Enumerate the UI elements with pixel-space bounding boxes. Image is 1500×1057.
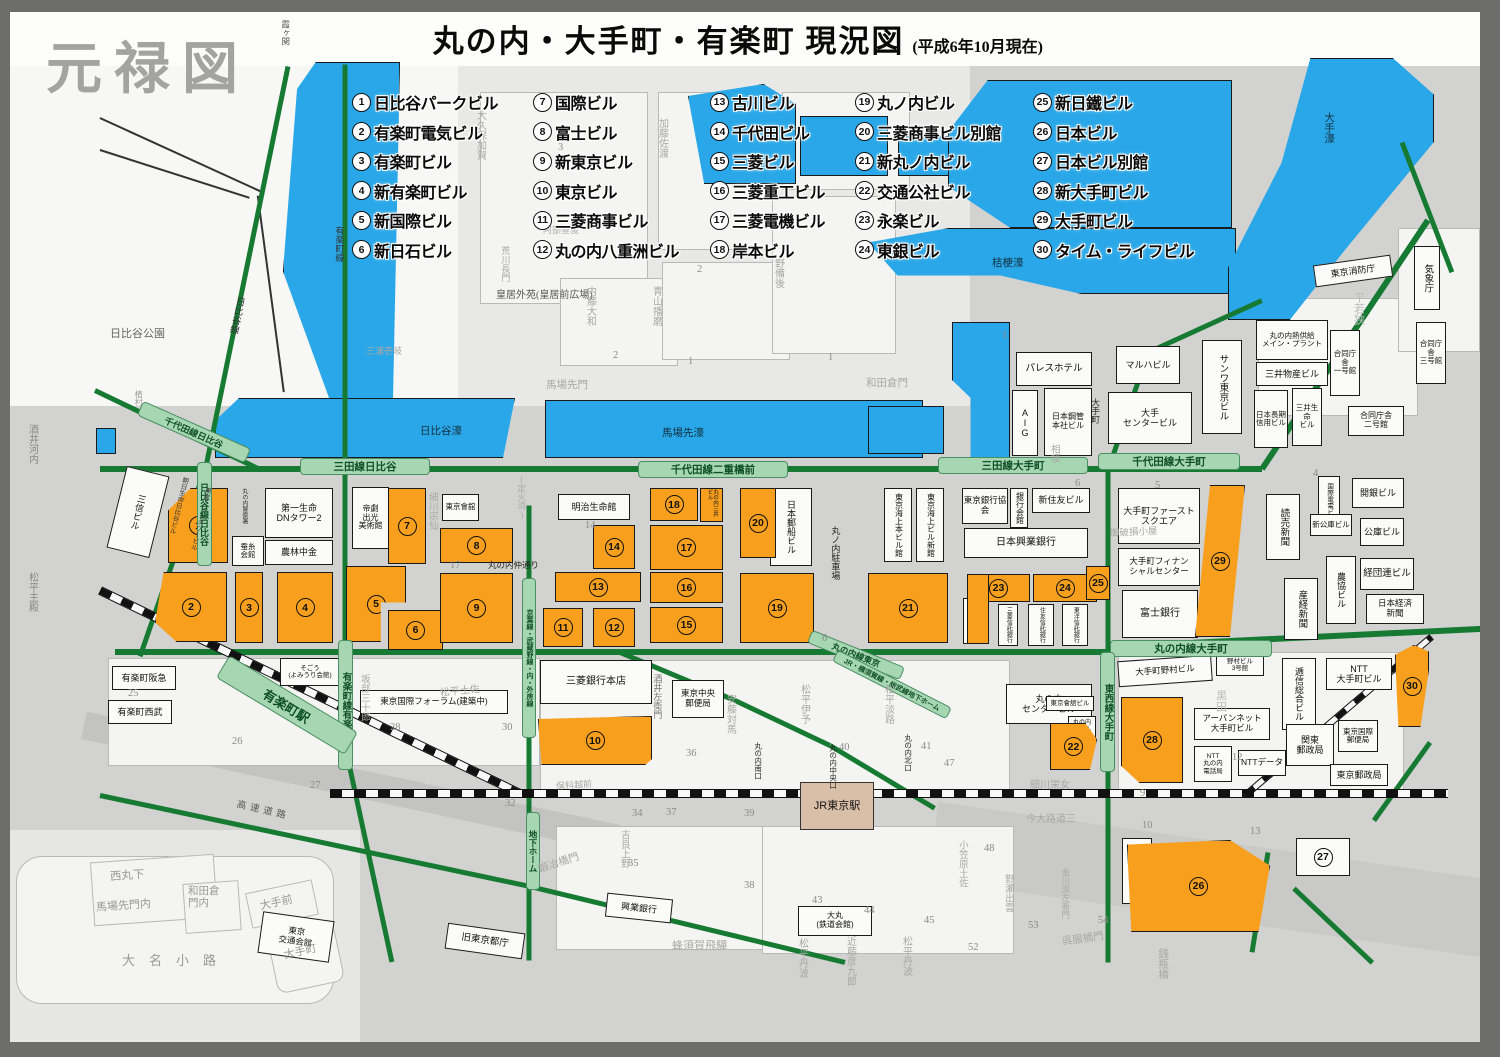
building-white: NTT 丸の内 電話局 bbox=[1194, 746, 1232, 782]
legend-building-name: 丸ノ内ビル bbox=[877, 90, 955, 114]
building-orange-14: 14 bbox=[593, 525, 635, 569]
city-block bbox=[662, 262, 790, 360]
map-label: 和田倉 門内 bbox=[188, 886, 220, 910]
map-label: 松平伊予 bbox=[798, 684, 810, 724]
map-label: 銭瓶橋 bbox=[1156, 948, 1168, 980]
building-white: 大手町フィナン シャルセンター bbox=[1118, 548, 1200, 586]
map-label: 皇居外苑(皇居前広場) bbox=[496, 290, 593, 302]
circled-number: 11 bbox=[554, 618, 573, 637]
legend-building-name: 有楽町電気ビル bbox=[374, 120, 483, 144]
building-white: 帝劇 出光 美術館 bbox=[352, 487, 389, 549]
map-label: 丸の内南口 bbox=[753, 742, 762, 780]
building-white: 日本長期 信用ビル bbox=[1254, 390, 1288, 448]
building-white: 有楽町西武 bbox=[108, 700, 172, 724]
plot-number: 13 bbox=[1250, 826, 1261, 837]
legend-item-4: 4新有楽町ビル bbox=[352, 181, 467, 201]
legend-building-name: 新日石ビル bbox=[374, 238, 452, 262]
circled-number: 16 bbox=[677, 578, 696, 597]
legend-building-name: 新大手町ビル bbox=[1055, 179, 1148, 203]
legend-item-8: 8富士ビル bbox=[533, 122, 617, 142]
legend-number: 15 bbox=[710, 152, 729, 171]
legend-building-name: 永楽ビル bbox=[877, 208, 939, 232]
legend-number: 17 bbox=[710, 211, 729, 230]
plot-number: 5 bbox=[1155, 480, 1160, 491]
map-label: 馬場先濠 bbox=[662, 428, 704, 440]
map-label: 野瀬出雲 bbox=[1002, 874, 1013, 912]
circled-number: 10 bbox=[586, 731, 605, 750]
circled-number: 9 bbox=[467, 599, 486, 618]
building-orange-20: 20 bbox=[740, 488, 776, 558]
map-label: 大手町 bbox=[1090, 398, 1100, 424]
building-white: 蚕糸 会館 bbox=[232, 536, 264, 566]
legend-number: 12 bbox=[533, 240, 552, 259]
plot-number: 2 bbox=[613, 350, 618, 361]
building-orange-27: 27 bbox=[1296, 838, 1350, 876]
legend-item-21: 21新丸ノ内ビル bbox=[855, 151, 970, 171]
plot-number: 9 bbox=[1140, 788, 1145, 799]
map-label: 大手濠 bbox=[1322, 112, 1334, 144]
legend-item-29: 29大手町ビル bbox=[1033, 210, 1133, 230]
building-white: 気象庁 bbox=[1414, 246, 1440, 310]
building-orange-28: 28 bbox=[1121, 697, 1183, 783]
plot-number: 43 bbox=[812, 895, 823, 906]
plot-number: 37 bbox=[666, 807, 677, 818]
building-white: NTT 大手町ビル bbox=[1326, 658, 1392, 690]
plot-number: 10 bbox=[1142, 820, 1153, 831]
plot-number: 52 bbox=[968, 942, 979, 953]
plot-number: 4 bbox=[1313, 468, 1318, 479]
building-orange-15: 15 bbox=[650, 607, 723, 643]
legend-item-25: 25新日鐵ビル bbox=[1033, 92, 1133, 112]
map-label: 和田倉門 bbox=[866, 378, 908, 390]
map-label: 松平主殿 bbox=[26, 572, 38, 612]
building-orange-11: 11 bbox=[543, 608, 583, 647]
building-orange-7: 7 bbox=[388, 488, 426, 564]
building-orange-25: 25 bbox=[1086, 566, 1110, 600]
circled-number: 8 bbox=[467, 536, 486, 555]
legend-building-name: 新国際ビル bbox=[374, 208, 452, 232]
plot-number: 1 bbox=[828, 352, 833, 363]
circled-number: 12 bbox=[605, 618, 624, 637]
building-orange-18: 18 bbox=[650, 488, 698, 521]
building-orange-21: 21 bbox=[868, 573, 948, 643]
road-green-line bbox=[115, 649, 1106, 655]
building-orange: 丸の内三井ビル bbox=[700, 488, 723, 522]
map-label: 丸の内北口 bbox=[903, 734, 912, 772]
plot-number: 27 bbox=[310, 780, 321, 791]
legend-number: 30 bbox=[1033, 240, 1052, 259]
building-orange-26: 26 bbox=[1127, 840, 1270, 932]
plot-number: 17 bbox=[450, 560, 461, 571]
circled-number: 30 bbox=[1403, 677, 1422, 696]
map-label: 黒田 bbox=[1214, 690, 1227, 712]
building-white: JR東京駅 bbox=[800, 782, 874, 830]
legend-item-16: 16三菱重工ビル bbox=[710, 181, 825, 201]
building-white: アーバンネット 大手町ビル bbox=[1194, 708, 1270, 740]
circled-number: 25 bbox=[1089, 574, 1108, 593]
legend-number: 27 bbox=[1033, 152, 1052, 171]
legend-building-name: 古川ビル bbox=[732, 90, 794, 114]
circled-number: 22 bbox=[1064, 737, 1083, 756]
legend-number: 13 bbox=[710, 93, 729, 112]
legend-number: 9 bbox=[533, 152, 552, 171]
building-label: 丸の内三井ビル bbox=[706, 489, 717, 521]
legend-item-1: 1日比谷パークビル bbox=[352, 92, 498, 112]
building-white: 住友信託銀行 bbox=[1028, 604, 1054, 646]
circled-number: 27 bbox=[1314, 848, 1333, 867]
page-edge-bottom bbox=[0, 1042, 1500, 1057]
building-orange-4: 4 bbox=[277, 572, 333, 643]
map-label: 桔梗濠 bbox=[992, 258, 1024, 270]
legend-item-6: 6新日石ビル bbox=[352, 240, 452, 260]
legend-number: 22 bbox=[855, 181, 874, 200]
legend-number: 18 bbox=[710, 240, 729, 259]
building-white: 丸の内熱供給 メイン・プラント bbox=[1256, 320, 1328, 360]
building-white: 新公庫ビル bbox=[1310, 514, 1352, 536]
legend-building-name: 三菱電機ビル bbox=[732, 208, 825, 232]
legend-building-name: 富士ビル bbox=[555, 120, 617, 144]
page-edge-left bbox=[0, 0, 10, 1057]
legend-building-name: 三菱重工ビル bbox=[732, 179, 825, 203]
building-white: 三菱信託銀行 bbox=[998, 604, 1018, 646]
legend-number: 16 bbox=[710, 181, 729, 200]
legend-number: 23 bbox=[855, 211, 874, 230]
map-label: (定火消) bbox=[516, 474, 526, 520]
plot-number: 39 bbox=[744, 808, 755, 819]
building-white: 三井物産ビル bbox=[1256, 362, 1328, 386]
building-white: 三信ビル bbox=[106, 466, 169, 558]
city-block bbox=[556, 826, 766, 950]
moat-water bbox=[868, 406, 944, 454]
building-orange-12: 12 bbox=[593, 608, 635, 647]
map-label: 丸の内警察署 bbox=[240, 488, 247, 524]
legend-building-name: 新丸ノ内ビル bbox=[877, 149, 970, 173]
building-white: AIG bbox=[1012, 390, 1038, 456]
legend-item-9: 9新東京ビル bbox=[533, 151, 633, 171]
moat-water bbox=[96, 428, 116, 454]
plot-number: 34 bbox=[632, 808, 643, 819]
building-white: 東京海上ビル新館 bbox=[916, 488, 944, 562]
building-white: マルハビル bbox=[1116, 346, 1180, 384]
map-label: 霞ヶ関 bbox=[280, 20, 290, 46]
circled-number: 26 bbox=[1189, 877, 1208, 896]
building-white: 東京国際 郵便局 bbox=[1338, 720, 1378, 752]
legend-number: 6 bbox=[352, 240, 371, 259]
legend-item-3: 3有楽町ビル bbox=[352, 151, 452, 171]
building-white: パレスホテル bbox=[1016, 352, 1092, 386]
building-orange-19: 19 bbox=[740, 573, 814, 643]
legend-item-28: 28新大手町ビル bbox=[1033, 181, 1148, 201]
building-white: 関東 郵政局 bbox=[1286, 724, 1334, 766]
building-white: 三菱銀行本店 bbox=[540, 660, 652, 704]
circled-number: 6 bbox=[406, 621, 425, 640]
building-white: 日本経済 新聞 bbox=[1366, 594, 1424, 624]
map-label: 相模 bbox=[1048, 444, 1059, 463]
map-label: 丸の内中央口 bbox=[828, 744, 837, 789]
plot-number: 1 bbox=[1002, 330, 1007, 341]
plot-number: 14 bbox=[585, 520, 596, 531]
map-label: 松平丹波 bbox=[796, 938, 808, 978]
plot-number: 2 bbox=[697, 264, 702, 275]
legend-number: 26 bbox=[1033, 122, 1052, 141]
legend-item-7: 7国際ビル bbox=[533, 92, 617, 112]
plot-number: 48 bbox=[984, 843, 995, 854]
legend-item-18: 18岸本ビル bbox=[710, 240, 794, 260]
legend-building-name: 三菱商事ビル bbox=[555, 208, 648, 232]
building-white: 東京會舘 bbox=[442, 494, 479, 521]
circled-number: 28 bbox=[1143, 731, 1162, 750]
building-white: 有楽町阪急 bbox=[112, 666, 176, 690]
legend-item-20: 20三菱商事ビル別館 bbox=[855, 122, 1001, 142]
map-label: 高速道路 bbox=[235, 800, 290, 823]
jr-railway-track bbox=[330, 789, 1448, 798]
building-white: サンワ東京ビル bbox=[1202, 340, 1242, 434]
map-label: 小笠原土佐 bbox=[956, 840, 967, 888]
legend-number: 21 bbox=[855, 152, 874, 171]
building-white: 産経新聞 bbox=[1284, 578, 1318, 640]
building-white: 東洋信託銀行 bbox=[1062, 604, 1088, 646]
plot-number: 47 bbox=[944, 758, 955, 769]
legend-number: 3 bbox=[352, 152, 371, 171]
legend-building-name: 三菱ビル bbox=[732, 149, 794, 173]
legend-item-11: 11三菱商事ビル bbox=[533, 210, 648, 230]
building-white: 銀行会館 bbox=[1010, 488, 1028, 528]
legend-number: 29 bbox=[1033, 211, 1052, 230]
map-label: 加藤佐渡 bbox=[656, 118, 668, 158]
building-orange-8: 8 bbox=[440, 528, 513, 563]
map-label: 松平丹波 bbox=[900, 936, 912, 976]
building-orange-13: 13 bbox=[555, 572, 641, 602]
legend-number: 20 bbox=[855, 122, 874, 141]
building-white: 東京會舘ビル bbox=[1046, 696, 1094, 711]
legend-building-name: 国際ビル bbox=[555, 90, 617, 114]
legend-number: 24 bbox=[855, 240, 874, 259]
map-label: 細川栄女 bbox=[1030, 780, 1070, 792]
map-label: 今大路道三 bbox=[1026, 814, 1076, 826]
circled-number: 18 bbox=[665, 495, 684, 514]
map-label: 蜂須賀飛驒 bbox=[672, 940, 727, 953]
building-orange-10: 10 bbox=[538, 716, 652, 765]
legend-item-10: 10東京ビル bbox=[533, 181, 617, 201]
circled-number: 29 bbox=[1211, 552, 1230, 571]
legend-item-12: 12丸の内八重洲ビル bbox=[533, 240, 679, 260]
circled-number: 21 bbox=[899, 599, 918, 618]
map-label: 西丸下 bbox=[110, 869, 145, 885]
station-pill: 丸の内線大手町 bbox=[1110, 640, 1272, 657]
legend-item-14: 14千代田ビル bbox=[710, 122, 810, 142]
station-pill: 地下ホーム bbox=[526, 812, 540, 890]
legend-number: 14 bbox=[710, 122, 729, 141]
map-label: 細川宗仙 bbox=[426, 492, 437, 530]
circled-number: 7 bbox=[398, 517, 417, 536]
legend-number: 8 bbox=[533, 122, 552, 141]
page-edge-right bbox=[1480, 0, 1500, 1057]
legend-item-17: 17三菱電機ビル bbox=[710, 210, 825, 230]
moat-water bbox=[545, 400, 923, 458]
legend-building-name: 東京ビル bbox=[555, 179, 617, 203]
map-label: 三浦壱岐 bbox=[366, 346, 402, 356]
legend-building-name: 新有楽町ビル bbox=[374, 179, 467, 203]
plot-number: 35 bbox=[628, 858, 639, 869]
legend-number: 5 bbox=[352, 211, 371, 230]
legend-item-5: 5新国際ビル bbox=[352, 210, 452, 230]
title-date-note: (平成6年10月現在) bbox=[912, 33, 1043, 57]
building-white: 農林中金 bbox=[265, 540, 333, 565]
legend-number: 1 bbox=[352, 93, 371, 112]
building-white: 大丸 (鉄道会館) bbox=[798, 906, 872, 936]
map-label: 有楽町線 bbox=[334, 226, 344, 262]
building-white: 大手 センタービル bbox=[1108, 392, 1192, 444]
page-title: 丸の内・大手町・有楽町 現況図 (平成6年10月現在) bbox=[433, 16, 1043, 61]
map-label: 松平淡路 bbox=[882, 684, 894, 724]
page-edge-top bbox=[0, 0, 1500, 12]
building-white: 読売新聞 bbox=[1266, 494, 1300, 560]
circled-number: 23 bbox=[989, 579, 1008, 598]
circled-number: 20 bbox=[749, 514, 768, 533]
circled-number: 14 bbox=[605, 538, 624, 557]
circled-number: 3 bbox=[240, 598, 259, 617]
building-orange-9: 9 bbox=[440, 573, 513, 643]
building-white: 経団連ビル bbox=[1360, 558, 1414, 590]
circled-number: 5 bbox=[367, 595, 386, 614]
building-white: 旧東京都庁 bbox=[445, 923, 526, 960]
title-text: 丸の内・大手町・有楽町 現況図 bbox=[433, 16, 905, 61]
legend-number: 2 bbox=[352, 122, 371, 141]
building-white: NTTデータ bbox=[1238, 750, 1286, 776]
legend-number: 19 bbox=[855, 93, 874, 112]
plot-number: 38 bbox=[744, 880, 755, 891]
plot-number: 41 bbox=[921, 741, 932, 752]
legend-building-name: 丸の内八重洲ビル bbox=[555, 238, 679, 262]
legend-building-name: 岸本ビル bbox=[732, 238, 794, 262]
plot-number: 32 bbox=[505, 798, 516, 809]
map-label: 呉服橋門 bbox=[1061, 931, 1104, 949]
plot-number: 12 bbox=[1232, 752, 1243, 763]
legend-number: 11 bbox=[533, 211, 552, 230]
legend-item-27: 27日本ビル別館 bbox=[1033, 151, 1148, 171]
legend-item-13: 13古川ビル bbox=[710, 92, 794, 112]
map-label: 丸ノ内駐車場 bbox=[830, 526, 840, 580]
legend-building-name: 日比谷パークビル bbox=[374, 90, 498, 114]
building-white: 東京海上本ビル館 bbox=[884, 488, 912, 562]
building-white: 第一生命 DNタワー2 bbox=[265, 488, 333, 538]
legend-building-name: タイム・ライフビル bbox=[1055, 238, 1194, 262]
map-label: 丸の内仲通り bbox=[488, 561, 539, 571]
plot-number: 28 bbox=[390, 722, 401, 733]
legend-building-name: 千代田ビル bbox=[732, 120, 810, 144]
legend-building-name: 新日鐵ビル bbox=[1055, 90, 1133, 114]
legend-building-name: 大手町ビル bbox=[1055, 208, 1133, 232]
map-label: 野備後 bbox=[772, 258, 784, 288]
plot-number: 54 bbox=[1098, 915, 1109, 926]
legend-number: 4 bbox=[352, 181, 371, 200]
building-white: 開銀ビル bbox=[1352, 478, 1404, 508]
legend-building-name: 有楽町ビル bbox=[374, 149, 452, 173]
legend-item-30: 30タイム・ライフビル bbox=[1033, 240, 1194, 260]
legend-number: 25 bbox=[1033, 93, 1052, 112]
building-white: 富士銀行 bbox=[1122, 590, 1198, 638]
plot-number: 6 bbox=[1075, 478, 1080, 489]
map-label: 馬場先門 bbox=[546, 380, 588, 392]
legend-building-name: 新東京ビル bbox=[555, 149, 633, 173]
map-label: 荒川長門 bbox=[500, 246, 510, 282]
plot-number: 6 bbox=[822, 633, 827, 644]
station-pill: 東西線大手町 bbox=[1100, 652, 1115, 772]
map-label: 酒井左衛門 bbox=[652, 674, 662, 719]
building-white: 合同庁舎 一号館 bbox=[1330, 330, 1360, 396]
plot-number: 36 bbox=[686, 748, 697, 759]
map-label: 日比谷公園 bbox=[110, 328, 165, 341]
circled-number: 2 bbox=[182, 598, 201, 617]
building-orange-6: 6 bbox=[388, 610, 443, 650]
legend-number: 10 bbox=[533, 181, 552, 200]
plot-number: 44 bbox=[864, 905, 875, 916]
building-orange-2: 2 bbox=[155, 572, 227, 642]
station-pill: 千代田線大手町 bbox=[1098, 453, 1240, 470]
map-label: 近藤彦九郎 bbox=[844, 936, 856, 986]
building-white: 日本郵船ビル bbox=[770, 488, 812, 566]
legend-item-15: 15三菱ビル bbox=[710, 151, 794, 171]
building-white: 農協ビル bbox=[1326, 556, 1356, 624]
plot-number: 25 bbox=[128, 688, 139, 699]
building-white: 東京銀行協会 bbox=[962, 488, 1008, 524]
building-white: 三井生命 ビル bbox=[1292, 388, 1322, 446]
legend-building-name: 三菱商事ビル別館 bbox=[877, 120, 1001, 144]
plot-number: 26 bbox=[232, 736, 243, 747]
circled-number: 15 bbox=[677, 616, 696, 635]
building-white: 合同庁舎 二号館 bbox=[1348, 406, 1404, 436]
map-page: 第一生命 DNタワー2農林中金帝劇 出光 美術館東京會舘明治生命館日本郵船ビル東… bbox=[0, 0, 1500, 1057]
legend-building-name: 日本ビル bbox=[1055, 120, 1117, 144]
circled-number: 19 bbox=[768, 599, 787, 618]
plot-number: 45 bbox=[924, 915, 935, 926]
building-white: 逓信総合ビル bbox=[1282, 658, 1316, 730]
plot-number: 30 bbox=[502, 722, 513, 733]
circled-number: 13 bbox=[589, 578, 608, 597]
map-label: 青山播磨 bbox=[650, 286, 662, 326]
building-white: 東京郵政局 bbox=[1330, 764, 1388, 786]
legend-building-name: 交通公社ビル bbox=[877, 179, 970, 203]
building-orange-16: 16 bbox=[650, 572, 723, 603]
legend-building-name: 東銀ビル bbox=[877, 238, 939, 262]
building-orange bbox=[967, 574, 989, 644]
legend-item-23: 23永楽ビル bbox=[855, 210, 939, 230]
map-label: 坂部三十郎 bbox=[358, 674, 369, 722]
building-orange-3: 3 bbox=[235, 572, 263, 643]
building-white: 野村ビル 3号館 bbox=[1216, 654, 1264, 676]
map-label: 安藤対馬 bbox=[724, 694, 736, 734]
map-label: 金川添左衛門 bbox=[1060, 868, 1070, 919]
map-label: 酒井河内 bbox=[26, 424, 38, 464]
building-orange-22: 22 bbox=[1050, 723, 1097, 770]
plot-number: 53 bbox=[1028, 920, 1039, 931]
legend-item-2: 2有楽町電気ビル bbox=[352, 122, 483, 142]
legend-item-19: 19丸ノ内ビル bbox=[855, 92, 955, 112]
legend-item-22: 22交通公社ビル bbox=[855, 181, 970, 201]
building-white: 東京国際フォーラム(建築中) bbox=[360, 690, 508, 714]
map-label: 内藤大和 bbox=[584, 286, 596, 326]
building-white: 明治生命館 bbox=[558, 494, 630, 520]
plot-number: 40 bbox=[839, 742, 850, 753]
map-label: 植村 bbox=[134, 390, 143, 406]
building-white: 日本興業銀行 bbox=[964, 528, 1088, 558]
map-label: 日比谷濠 bbox=[420, 426, 462, 438]
station-pill: 三田線大手町 bbox=[938, 457, 1088, 474]
building-white: 公庫ビル bbox=[1360, 518, 1404, 546]
building-white: 東京中央 郵便局 bbox=[672, 680, 724, 718]
building-orange-30: 30 bbox=[1395, 645, 1429, 727]
genroku-map-label: 元禄図 bbox=[46, 24, 250, 105]
